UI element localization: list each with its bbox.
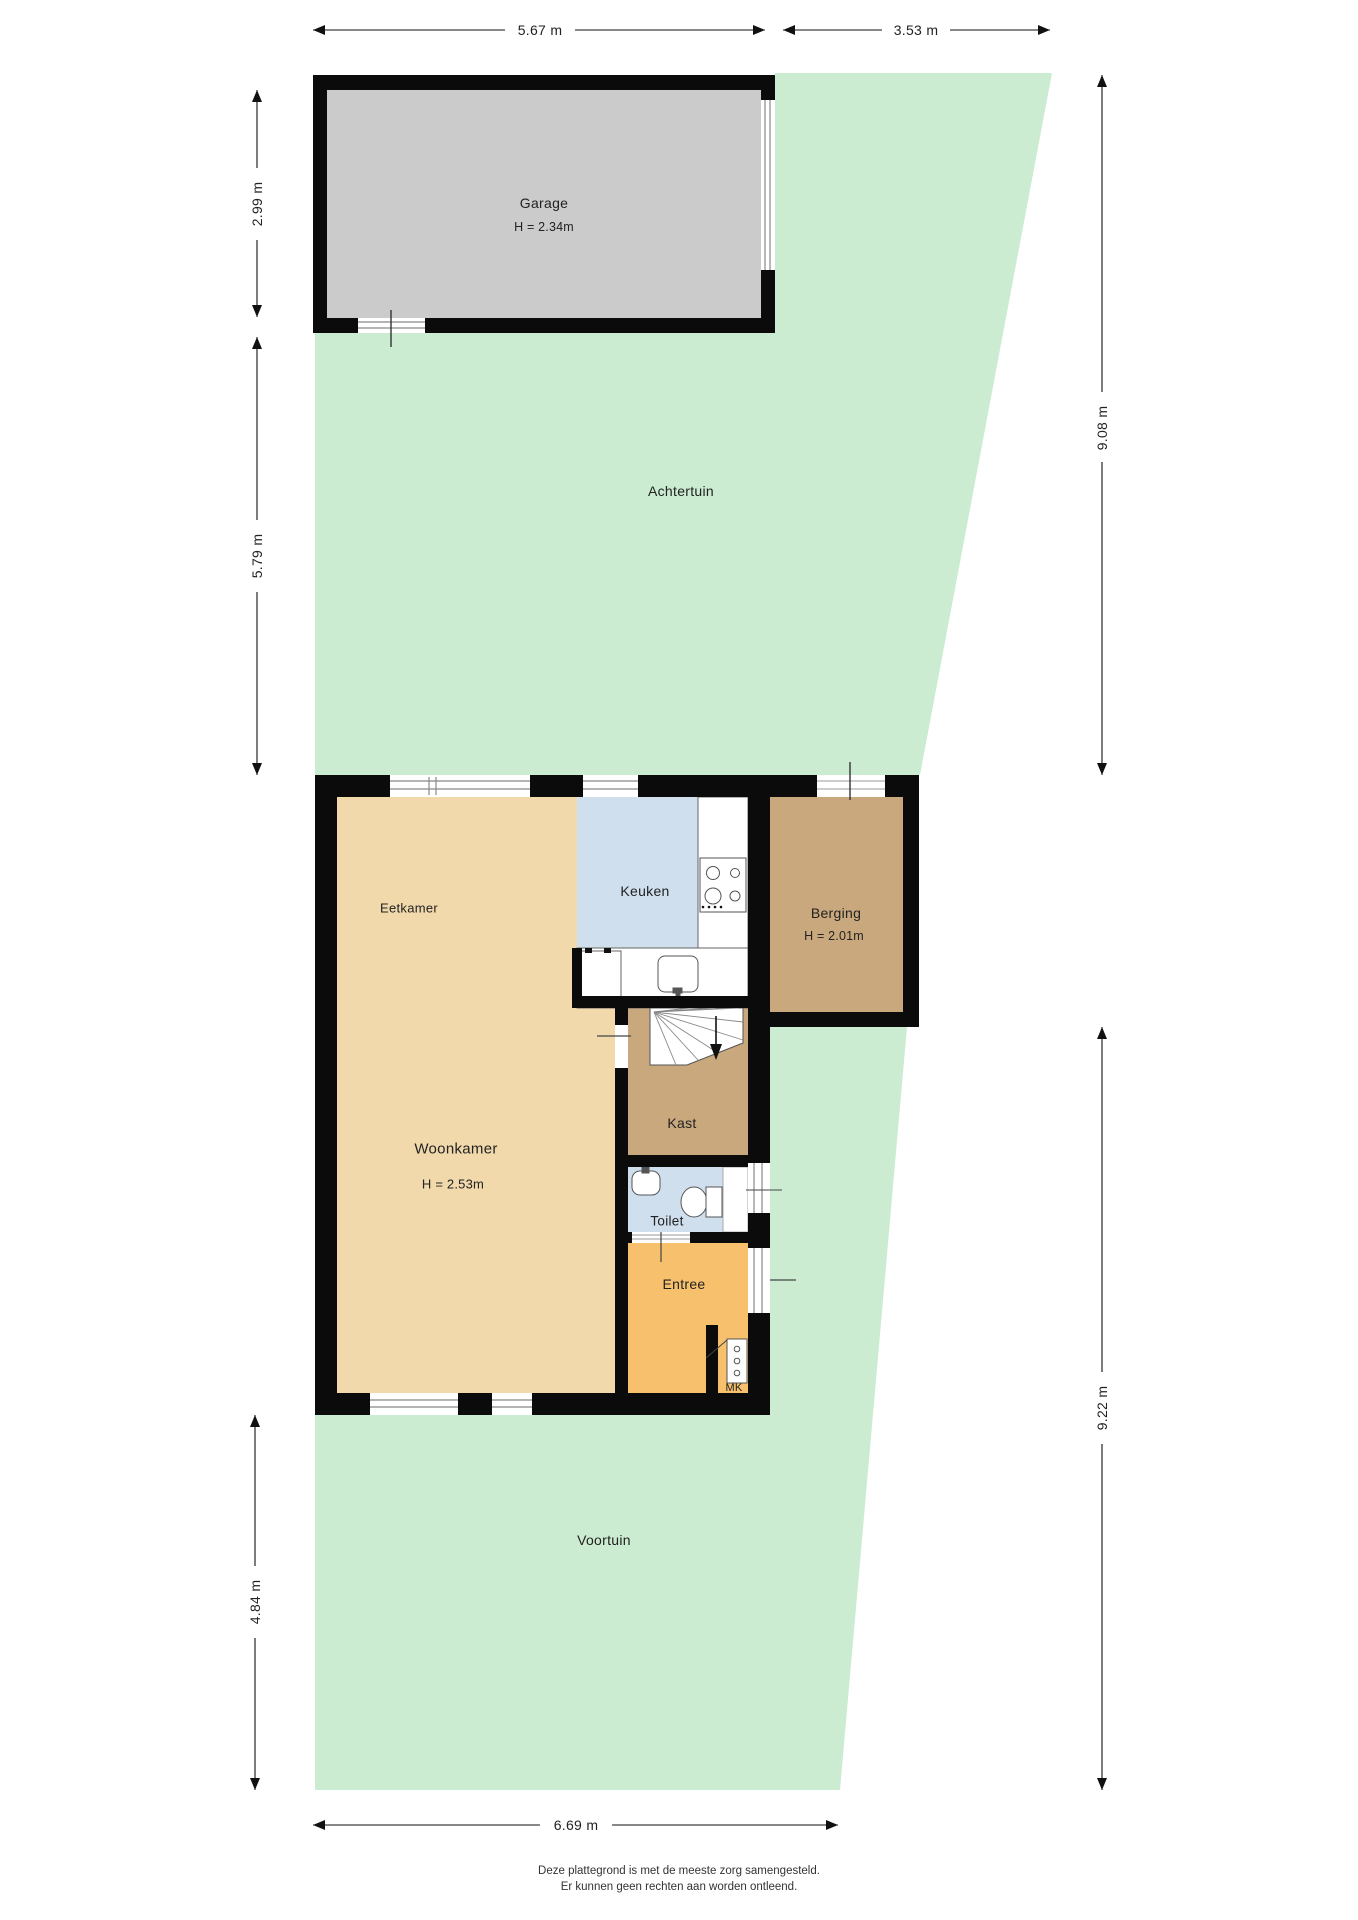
- room-label-toilet: Toilet: [650, 1214, 683, 1229]
- duct-space: [723, 1167, 748, 1232]
- room-height-woonkamer: H = 2.53m: [422, 1177, 484, 1192]
- hand-basin: [632, 1171, 660, 1195]
- kitchen-window: [583, 775, 638, 797]
- stove: [700, 858, 746, 912]
- kitchen-floor: [577, 797, 698, 952]
- toilet-bowl: [681, 1187, 707, 1217]
- dim-backyard-depth: 5.79 m: [249, 534, 265, 579]
- room-label-berging: Berging: [811, 905, 861, 921]
- toilet-tank: [706, 1187, 722, 1217]
- dim-frontyard-depth: 4.84 m: [247, 1580, 263, 1625]
- disclaimer-line-2: Er kunnen geen rechten aan worden ontlee…: [561, 1881, 798, 1893]
- room-height-garage: H = 2.34m: [514, 220, 574, 234]
- room-label-woonkamer: Woonkamer: [414, 1141, 497, 1158]
- dim-frontyard-width: 6.69 m: [554, 1817, 599, 1833]
- room-label-kast: Kast: [667, 1115, 696, 1131]
- room-label-garage: Garage: [520, 195, 569, 211]
- area-label-voortuin: Voortuin: [577, 1532, 631, 1548]
- dim-garage-width: 5.67 m: [518, 22, 563, 38]
- dining-window: [390, 775, 530, 797]
- floorplan-drawing: [0, 0, 1358, 1920]
- meter-cupboard: [727, 1339, 747, 1383]
- garage-window: [761, 100, 775, 270]
- room-label-keuken: Keuken: [620, 883, 669, 899]
- living-dining-floor: [337, 797, 615, 1393]
- dim-garage-depth: 2.99 m: [249, 182, 265, 227]
- living-window-right: [492, 1393, 532, 1415]
- dim-back-plot-width: 3.53 m: [894, 22, 939, 38]
- disclaimer-line-1: Deze plattegrond is met de meeste zorg s…: [538, 1865, 820, 1877]
- room-label-meterkast: MK: [725, 1382, 742, 1394]
- dim-backyard-right-depth: 9.08 m: [1094, 406, 1110, 451]
- room-label-entree: Entree: [662, 1276, 705, 1292]
- area-label-achtertuin: Achtertuin: [648, 483, 714, 499]
- room-label-eetkamer: Eetkamer: [380, 901, 438, 916]
- room-height-berging: H = 2.01m: [804, 929, 864, 943]
- living-window-left: [370, 1393, 458, 1415]
- dim-front-right-depth: 9.22 m: [1094, 1386, 1110, 1431]
- floorplan-page: 5.67 m 3.53 m 2.99 m 5.79 m 9.08 m 9.22 …: [0, 0, 1358, 1920]
